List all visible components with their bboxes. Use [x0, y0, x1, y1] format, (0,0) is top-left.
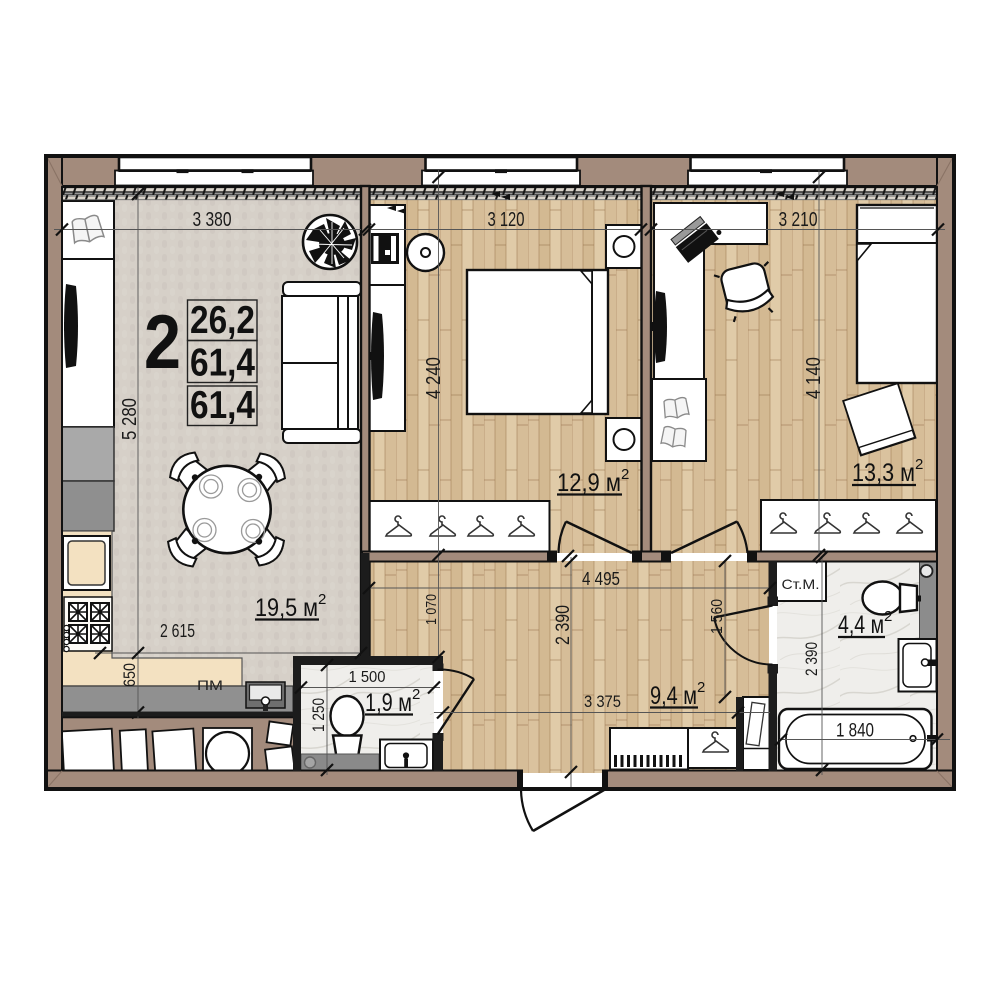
- svg-text:3 375: 3 375: [584, 692, 621, 711]
- svg-text:3 120: 3 120: [488, 209, 525, 231]
- svg-text:4 140: 4 140: [803, 357, 825, 399]
- svg-text:2: 2: [697, 679, 705, 696]
- svg-text:2: 2: [318, 591, 326, 608]
- svg-text:Ст.М.: Ст.М.: [782, 576, 820, 592]
- svg-text:1 070: 1 070: [423, 594, 440, 625]
- svg-text:61,4: 61,4: [190, 342, 255, 385]
- svg-text:2: 2: [915, 456, 923, 473]
- svg-text:9,4 м: 9,4 м: [650, 682, 697, 710]
- svg-text:19,5 м: 19,5 м: [255, 594, 318, 622]
- svg-text:13,3 м: 13,3 м: [852, 459, 915, 487]
- svg-text:1 840: 1 840: [836, 721, 874, 742]
- svg-text:4 240: 4 240: [423, 357, 445, 399]
- svg-text:1,9 м: 1,9 м: [365, 689, 412, 717]
- svg-text:2: 2: [144, 300, 181, 385]
- svg-text:26,2: 26,2: [190, 299, 255, 342]
- svg-text:12,9 м: 12,9 м: [557, 469, 621, 497]
- svg-text:2: 2: [884, 608, 892, 625]
- svg-text:2 615: 2 615: [160, 621, 195, 641]
- svg-text:4 495: 4 495: [582, 569, 620, 589]
- svg-text:5 280: 5 280: [119, 398, 141, 440]
- svg-text:650: 650: [120, 663, 139, 687]
- svg-text:3 210: 3 210: [779, 209, 818, 231]
- svg-text:4,4 м: 4,4 м: [838, 611, 884, 639]
- svg-text:3 380: 3 380: [193, 209, 232, 231]
- svg-text:1 560: 1 560: [709, 599, 726, 634]
- svg-text:2: 2: [412, 686, 420, 703]
- svg-text:2 390: 2 390: [553, 605, 574, 645]
- svg-text:2 390: 2 390: [802, 642, 821, 676]
- svg-text:1 250: 1 250: [309, 698, 328, 732]
- svg-text:ПМ: ПМ: [197, 677, 223, 693]
- svg-text:2: 2: [621, 466, 629, 483]
- svg-text:1 500: 1 500: [349, 669, 386, 686]
- svg-text:61,4: 61,4: [190, 384, 255, 427]
